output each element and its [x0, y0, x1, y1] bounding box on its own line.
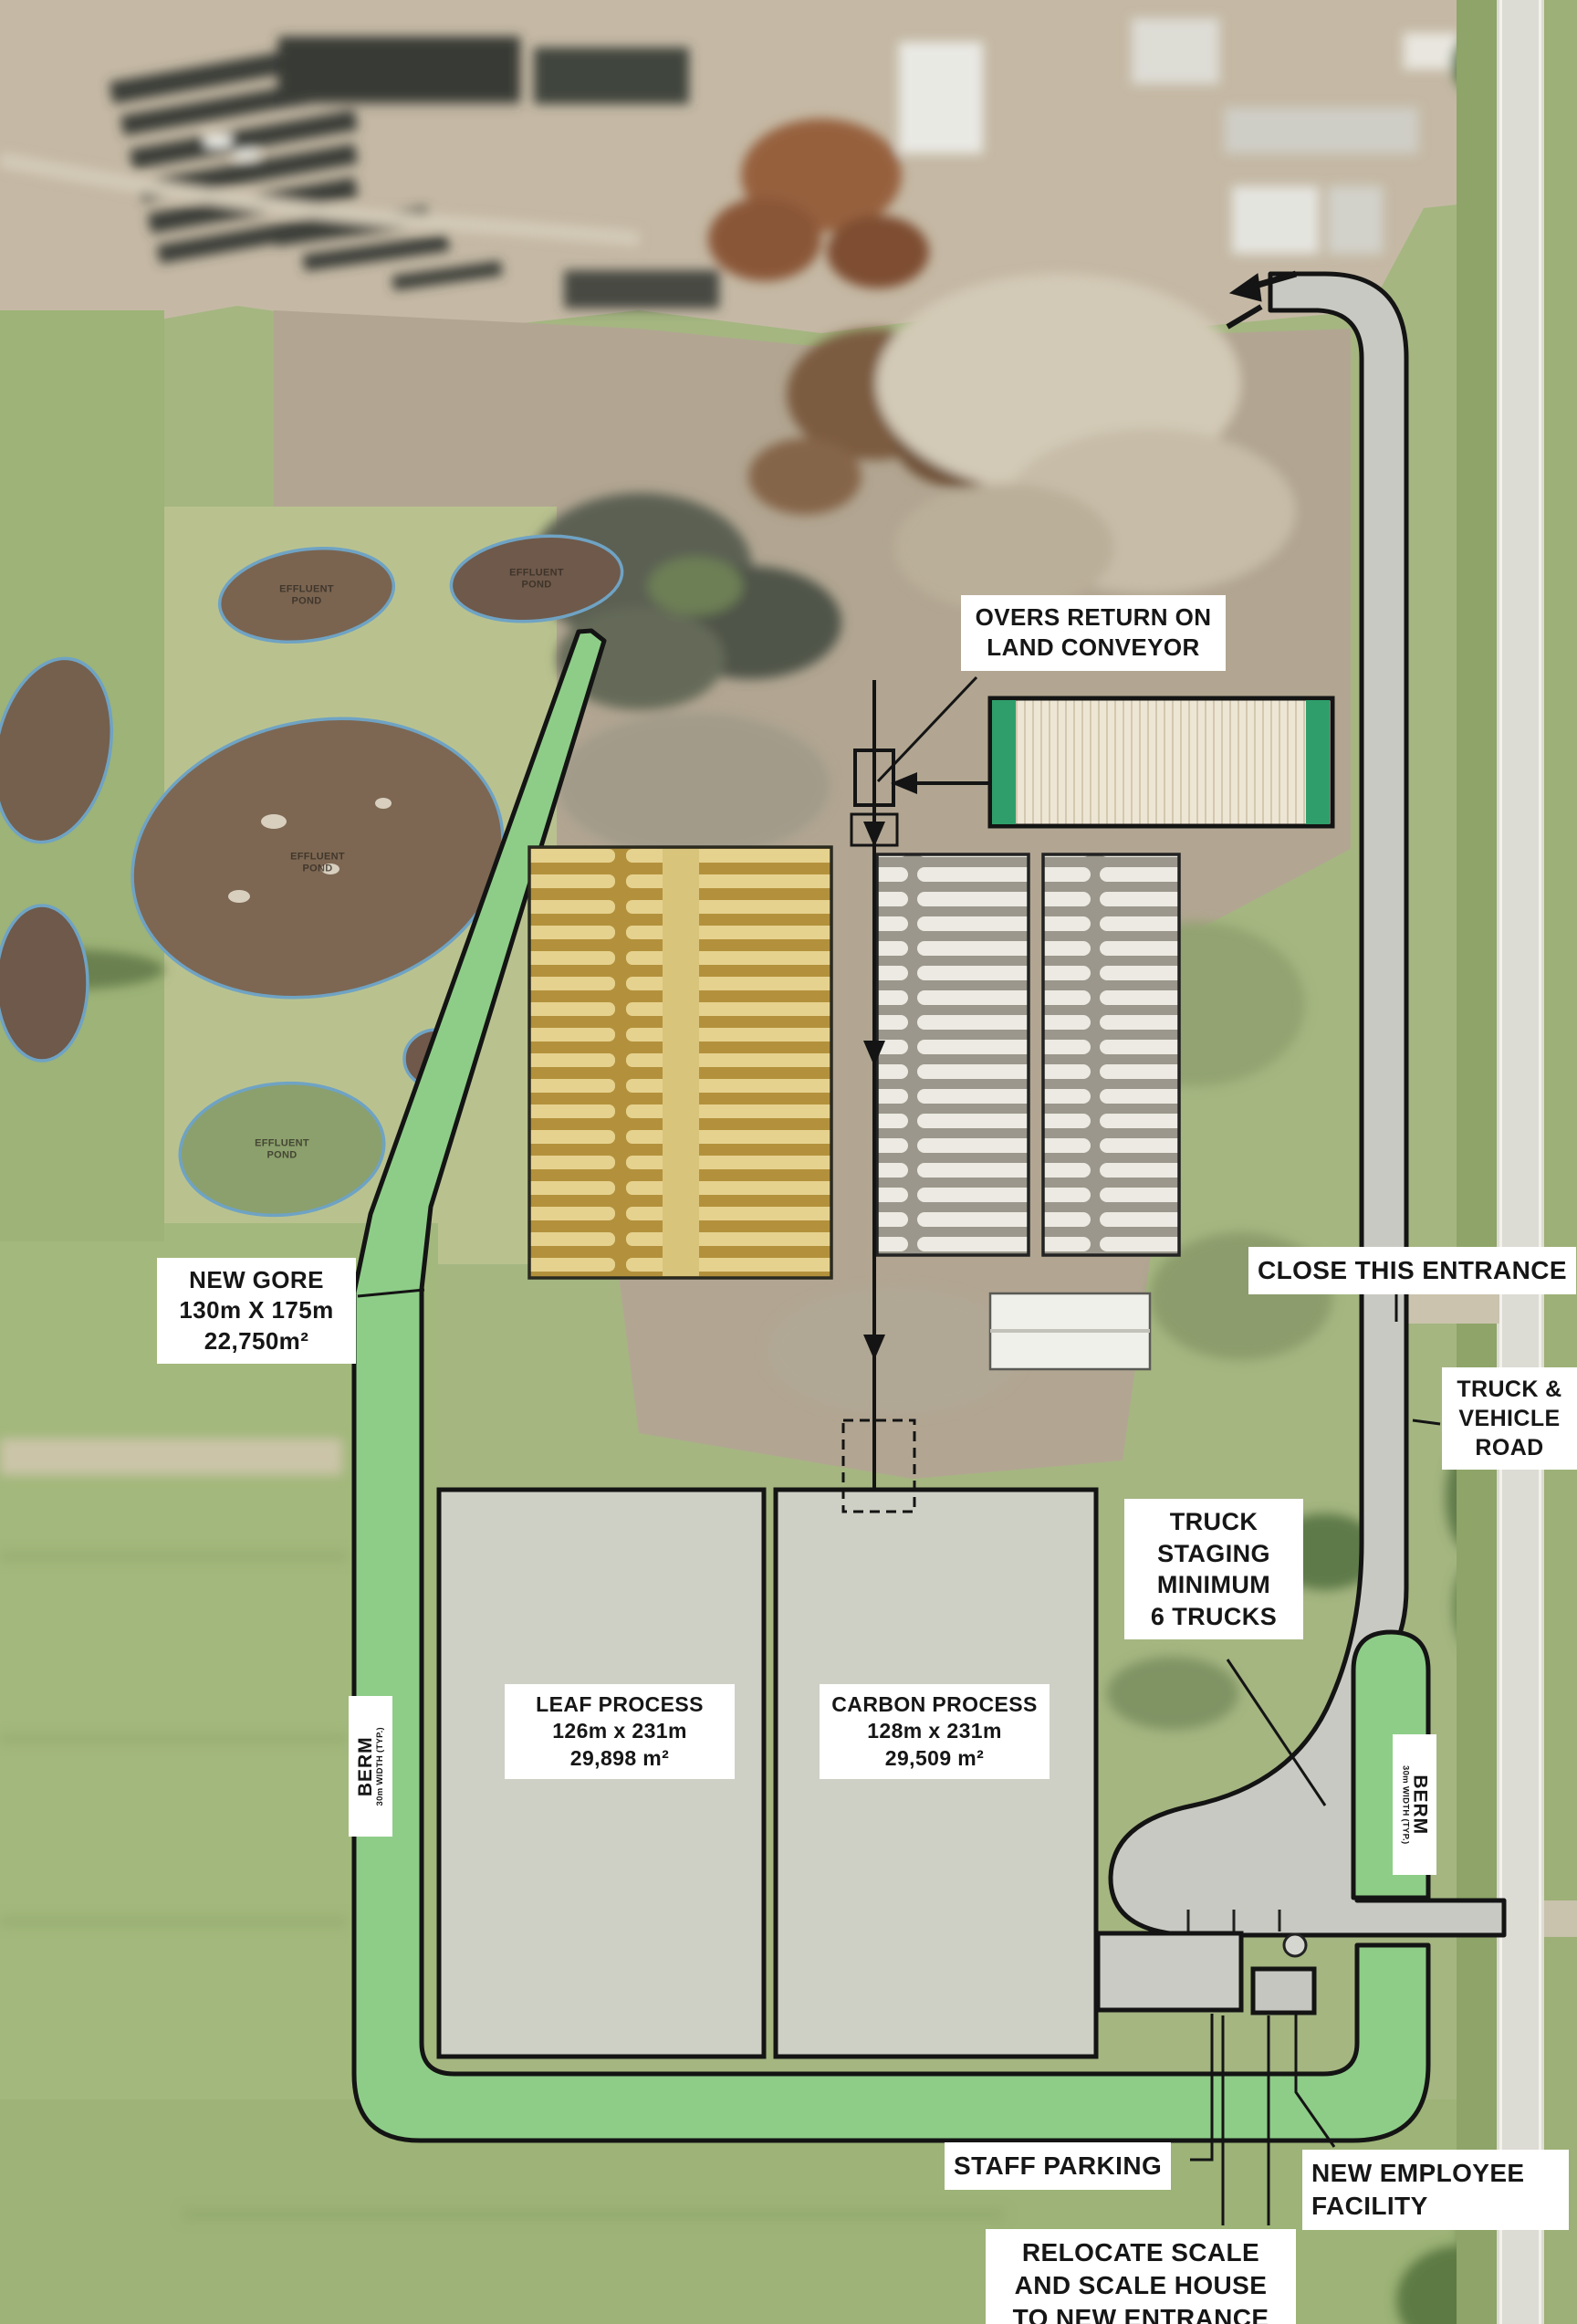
label-relocate-scale: RELOCATE SCALE AND SCALE HOUSE TO NEW EN… [986, 2229, 1296, 2324]
label-staff-parking: STAFF PARKING [945, 2142, 1171, 2190]
label-effluent-pond-1: EFFLUENT POND [279, 583, 334, 606]
label-berm-left: BERM 30m WIDTH (TYP.) [349, 1696, 392, 1837]
windrow-block-white-1 [877, 854, 1029, 1255]
hoop-building [990, 698, 1332, 826]
public-road [1457, 0, 1577, 2324]
staff-parking-area [1098, 1933, 1241, 2010]
label-effluent-pond-3: EFFLUENT POND [290, 851, 345, 874]
windrow-block-yellow [529, 847, 831, 1278]
label-new-gore: NEW GORE 130m X 175m 22,750m² [157, 1258, 356, 1364]
label-leaf-process: LEAF PROCESS 126m x 231m 29,898 m² [505, 1684, 735, 1779]
windrow-block-white-2 [1043, 854, 1179, 1255]
berm-left-sub: 30m WIDTH (TYP.) [376, 1727, 385, 1806]
gable-building [990, 1293, 1150, 1369]
aerial-base-svg [0, 0, 1577, 2324]
berm-right-sub: 30m WIDTH (TYP.) [1400, 1765, 1409, 1844]
label-close-entrance: CLOSE THIS ENTRANCE [1248, 1247, 1576, 1294]
label-berm-right: BERM 30m WIDTH (TYP.) [1393, 1734, 1436, 1875]
label-carbon-process: CARBON PROCESS 128m x 231m 29,509 m² [820, 1684, 1050, 1779]
label-effluent-pond-4: EFFLUENT POND [255, 1137, 309, 1160]
label-truck-staging: TRUCK STAGING MINIMUM 6 TRUCKS [1124, 1499, 1303, 1639]
label-new-employee-facility: NEW EMPLOYEE FACILITY [1302, 2150, 1569, 2230]
label-truck-vehicle-road: TRUCK & VEHICLE ROAD [1442, 1367, 1577, 1470]
berm-right-title: BERM [1409, 1765, 1429, 1844]
scale-house [1253, 1969, 1314, 2013]
site-plan-map: OVERS RETURN ON LAND CONVEYOR NEW GORE 1… [0, 0, 1577, 2324]
label-effluent-pond-2: EFFLUENT POND [509, 567, 564, 590]
berm-left-title: BERM [356, 1727, 376, 1806]
label-overs-return: OVERS RETURN ON LAND CONVEYOR [961, 595, 1226, 671]
